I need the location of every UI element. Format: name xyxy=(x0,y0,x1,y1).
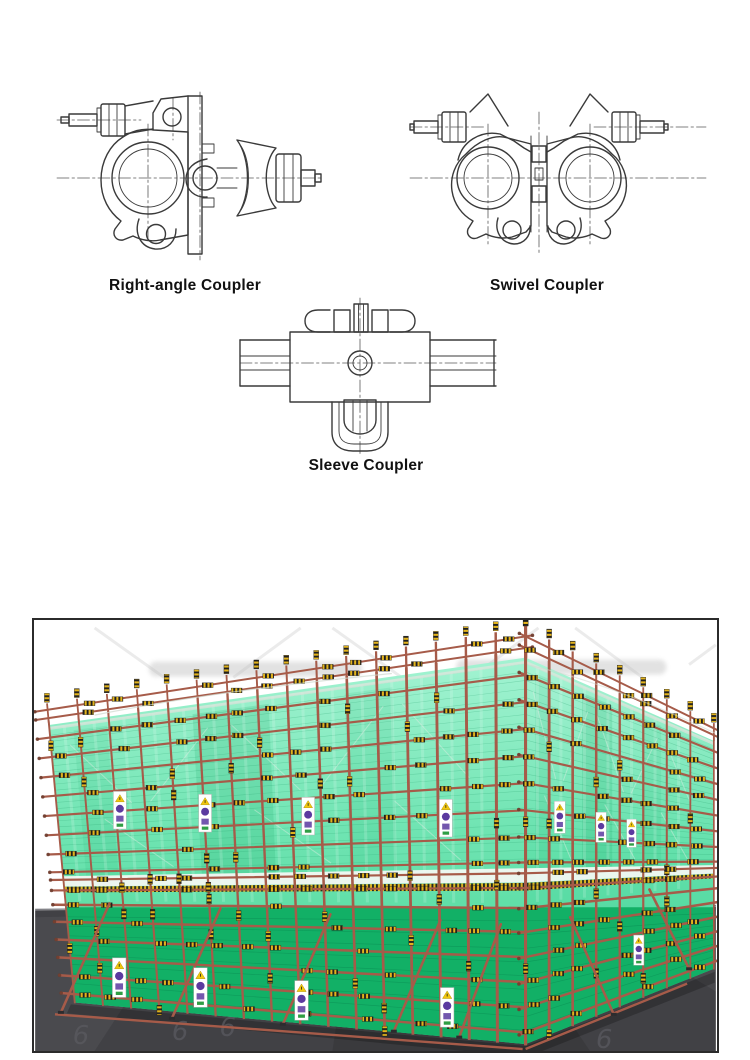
info-plate-icon xyxy=(304,822,311,828)
sleeve-coupler-drawing xyxy=(238,292,498,460)
mandatory-circle-icon xyxy=(636,946,642,952)
scaffolding-3d-render: 6666 xyxy=(34,620,717,1051)
mandatory-circle-icon xyxy=(116,805,124,813)
mandatory-circle-icon xyxy=(196,982,204,990)
clamp-body xyxy=(101,96,214,254)
warning-sign xyxy=(113,791,126,829)
info-plate-icon xyxy=(116,816,123,822)
mandatory-circle-icon xyxy=(556,813,563,820)
right-angle-coupler-label: Right-angle Coupler xyxy=(65,277,305,295)
green-plate-icon xyxy=(197,1002,204,1005)
info-plate-icon xyxy=(443,1013,451,1019)
warning-sign xyxy=(302,797,315,835)
warning-sign xyxy=(627,819,637,847)
info-plate-icon xyxy=(629,837,634,841)
green-plate-icon xyxy=(557,829,563,832)
mandatory-circle-icon xyxy=(115,972,123,980)
mandatory-circle-icon xyxy=(304,811,312,819)
mandatory-circle-icon xyxy=(598,823,604,829)
info-plate-icon xyxy=(598,832,604,837)
right-clamp xyxy=(547,94,668,244)
info-plate-icon xyxy=(115,983,123,989)
info-plate-icon xyxy=(557,822,563,827)
mandatory-circle-icon xyxy=(629,829,635,835)
watermark-6: 6 xyxy=(73,1021,89,1051)
warning-sign xyxy=(199,794,212,832)
green-plate-icon xyxy=(202,827,209,830)
scaffold-left-face xyxy=(34,620,534,1045)
green-plate-icon xyxy=(443,832,450,835)
warning-sign xyxy=(439,799,452,837)
scaffolding-render-frame: 6666 xyxy=(32,618,719,1053)
green-plate-icon xyxy=(636,961,641,964)
info-plate-icon xyxy=(201,819,208,825)
left-clamp xyxy=(410,94,531,244)
mandatory-circle-icon xyxy=(442,813,450,821)
info-plate-icon xyxy=(298,1006,306,1012)
green-plate-icon xyxy=(117,824,124,827)
green-plate-icon xyxy=(598,838,603,841)
warning-sign xyxy=(112,958,126,998)
watermark-6: 6 xyxy=(596,1025,612,1051)
warning-sign xyxy=(440,988,454,1028)
mandatory-circle-icon xyxy=(201,808,209,816)
warning-sign xyxy=(554,801,565,833)
green-plate-icon xyxy=(444,1021,451,1024)
green-plate-icon xyxy=(298,1014,305,1017)
swivel-coupler-label: Swivel Coupler xyxy=(427,277,667,295)
swivel-coupler-drawing xyxy=(408,82,708,270)
warning-sign xyxy=(295,981,309,1021)
mandatory-circle-icon xyxy=(443,1002,451,1010)
green-plate-icon xyxy=(116,992,123,995)
warning-sign xyxy=(596,812,606,842)
mandatory-circle-icon xyxy=(297,995,305,1003)
page: Right-angle Coupler Swivel Coupler Sleev… xyxy=(0,0,750,1060)
green-plate-icon xyxy=(629,843,634,845)
watermark-6: 6 xyxy=(172,1017,188,1047)
info-plate-icon xyxy=(442,824,449,830)
right-angle-coupler-drawing xyxy=(55,88,325,266)
warning-sign xyxy=(194,968,208,1008)
sleeve-coupler-label: Sleeve Coupler xyxy=(246,457,486,475)
info-plate-icon xyxy=(197,993,205,999)
warning-sign xyxy=(634,935,644,965)
info-plate-icon xyxy=(636,954,642,959)
green-plate-icon xyxy=(305,830,312,833)
